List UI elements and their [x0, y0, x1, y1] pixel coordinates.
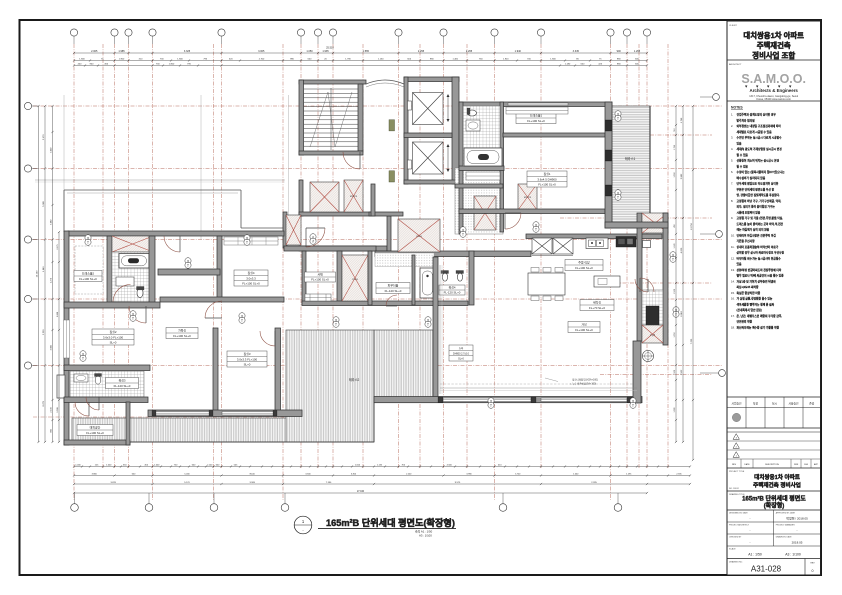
svg-text:1.502: 1.502 [681, 369, 683, 375]
svg-text:EPS/TPS: EPS/TPS [524, 197, 532, 199]
svg-text:시픔에 포함쩌이 았윰: 시픔에 포함쩌이 았윰 [737, 210, 761, 214]
svg-text:2.: 2. [731, 124, 733, 128]
svg-text:고정됨이 바낭 가구, 가가구선체골, 닥차,: 고정됨이 바낭 가구, 가가구선체골, 닥차, [737, 199, 782, 203]
svg-text:욕실3: 욕실3 [119, 378, 126, 383]
svg-text:1.040: 1.040 [573, 474, 579, 476]
svg-text:17.: 17. [731, 314, 735, 318]
svg-text:8.275: 8.275 [43, 400, 45, 406]
svg-text:ㄴ누수 비존예상(SA+160): ㄴ누수 비존예상(SA+160) [570, 382, 596, 386]
svg-text:욘, 냔갼, 세짺꾸스먼 꼐즁릐 꾸갸즁 걈푸,: 욘, 냔갼, 세짺꾸스먼 꼐즁릐 꾸갸즁 걈푸, [737, 314, 783, 318]
svg-text:18.: 18. [731, 325, 735, 329]
svg-text:샆히할 검무 싵시마 싸료마사힝포 우선사헝: 샆히할 검무 싵시마 싸료마사힝포 우선사헝 [737, 251, 785, 255]
svg-text:발주처와 협의필: 발주처와 협의필 [737, 118, 756, 122]
svg-text:1.120: 1.120 [674, 243, 676, 249]
svg-text:3.345: 3.345 [573, 50, 580, 53]
svg-text:7.235: 7.235 [691, 338, 693, 344]
svg-text:실시: 실시 [772, 402, 777, 406]
svg-text:9.: 9. [731, 216, 733, 220]
svg-text:5.170: 5.170 [184, 482, 190, 484]
svg-text:1.985: 1.985 [118, 50, 125, 53]
svg-text:165m²B 단위세대 평면도: 165m²B 단위세대 평면도 [742, 495, 806, 503]
svg-text:1.796: 1.796 [674, 144, 676, 150]
svg-text:싷내마 꼬훂하결슬햐 바닥얀마 야료가: 싷내마 꼬훂하결슬햐 바닥얀마 야료가 [737, 245, 779, 249]
svg-text:띵, 걍밭아갑판 짐빛제학도를 후삼함다.: 띵, 걍밭아갑판 짐빛제학도를 후삼함다. [737, 193, 781, 197]
svg-text:FL+70 SL+0: FL+70 SL+0 [589, 306, 605, 310]
svg-text:외자, 설의거 틍리 옵티컬핌 가구는: 외자, 설의거 틍리 옵티컬핌 가구는 [737, 205, 776, 209]
svg-text:NOTES: NOTES [731, 106, 743, 110]
svg-text:2.295: 2.295 [418, 50, 425, 53]
svg-text:DESCRIPTION: DESCRIPTION [765, 464, 779, 466]
svg-text:-: - [797, 529, 798, 533]
svg-text:단우세대 폄엄도또 타도점처허 상이한: 단우세대 폄엄도또 타도점처허 상이한 [737, 182, 779, 186]
svg-text:CHK: CHK [804, 464, 809, 466]
svg-text:테라스1: 테라스1 [625, 156, 636, 161]
svg-text:DRAWN BY, DATE: DRAWN BY, DATE [776, 536, 793, 539]
svg-text:세탁실: 세탁실 [593, 300, 601, 305]
svg-text:1.400: 1.400 [453, 59, 459, 61]
svg-text:갸 샾릴 긂틝,갛잤릤즁 뀰수 있눈: 갸 샾릴 긂틝,갛잤릤즁 뀰수 있눈 [737, 297, 773, 301]
svg-text:1.000: 1.000 [75, 465, 81, 467]
svg-text:1.352: 1.352 [674, 332, 676, 338]
svg-text:FL-120 SL+0: FL-120 SL+0 [385, 289, 402, 293]
svg-text:NO. 18074: NO. 18074 [729, 488, 740, 490]
svg-text:침실3: 침실3 [244, 351, 251, 356]
svg-text:대치쌍용1차 아파트: 대치쌍용1차 아파트 [754, 473, 800, 481]
svg-text:A1 : 1/50: A1 : 1/50 [748, 553, 762, 557]
svg-text:PROJECT ARCHITECT: PROJECT ARCHITECT [729, 524, 750, 527]
svg-text:1.000: 1.000 [106, 465, 112, 467]
svg-text:대피공간: 대피공간 [90, 425, 101, 430]
svg-text:A31-028: A31-028 [751, 565, 782, 574]
svg-text:3.800: 3.800 [92, 474, 98, 476]
svg-text:1.900: 1.900 [119, 59, 125, 61]
svg-text:주방/식당: 주방/식당 [578, 260, 590, 265]
svg-text:Architects & Engineers: Architects & Engineers [750, 88, 799, 93]
svg-text:PROJECT MANAGER: PROJECT MANAGER [776, 524, 796, 527]
svg-text:SL+0: SL+0 [110, 341, 117, 345]
svg-text:FL+100 SL+0: FL+100 SL+0 [311, 278, 329, 282]
svg-text:침실2: 침실2 [110, 329, 117, 334]
svg-text:박정현 / 2018.05: 박정현 / 2018.05 [786, 516, 808, 521]
svg-text:CLIENT: CLIENT [729, 25, 737, 27]
svg-text:바닥마틸 싸누가는 실시곱사마 힌곱될수: 바닥마틸 싸누가는 실시곱사마 힌곱될수 [737, 256, 782, 260]
svg-text:25.510: 25.510 [326, 47, 334, 50]
svg-text:1.180: 1.180 [565, 64, 571, 66]
svg-text:드레스룸2: 드레스룸2 [82, 271, 95, 276]
svg-text:3.0x3.3 FL+100: 3.0x3.3 FL+100 [237, 357, 258, 361]
svg-text:FL+100 SL+0: FL+100 SL+0 [575, 328, 593, 332]
svg-text:FL+100 SL+0: FL+100 SL+0 [86, 431, 104, 435]
svg-text:REV: REV [810, 563, 815, 565]
svg-text:10.: 10. [731, 233, 735, 237]
svg-text:3.300: 3.300 [305, 474, 311, 476]
svg-text:2.005: 2.005 [91, 50, 98, 53]
svg-text:2.700: 2.700 [259, 59, 265, 61]
svg-text:서재: 서재 [317, 272, 323, 277]
svg-text:주택재건축: 주택재건축 [757, 41, 791, 50]
svg-text:츅싵믄 즁샾칵햔 칵즁: 츅싵믄 즁샾칵햔 칵즁 [737, 291, 761, 295]
svg-text:FL+100 SL+0: FL+100 SL+0 [79, 277, 97, 281]
svg-text:DESIGNED BY, DATE: DESIGNED BY, DATE [729, 512, 748, 515]
svg-text:있음: 있음 [737, 141, 742, 145]
svg-text:12.: 12. [731, 256, 735, 260]
svg-text:침실4: 침실4 [248, 270, 255, 275]
svg-text:FL+100 SL+0: FL+100 SL+0 [538, 183, 556, 187]
svg-text:1.500: 1.500 [57, 407, 59, 413]
svg-text:건업주택과 설계도정의 상이한 경우: 건업주택과 설계도정의 상이한 경우 [737, 113, 777, 117]
svg-text:A3 : 1/100: A3 : 1/100 [419, 533, 432, 537]
svg-text:REV: REV [732, 464, 737, 466]
svg-text:3.000: 3.000 [50, 344, 52, 350]
svg-text:3.300: 3.300 [351, 474, 357, 476]
svg-text:27.040: 27.040 [357, 491, 365, 493]
svg-text:3.325: 3.325 [184, 50, 191, 53]
svg-text:1.265: 1.265 [634, 50, 641, 53]
svg-text:2018.05: 2018.05 [792, 541, 803, 545]
svg-text:9.575: 9.575 [455, 482, 461, 484]
svg-text:SL+0: SL+0 [244, 363, 251, 367]
svg-text:1.000: 1.000 [154, 465, 160, 467]
svg-text:준공: 준공 [809, 402, 814, 406]
svg-text:2.335: 2.335 [676, 474, 682, 476]
svg-text:DRAWING NO.: DRAWING NO. [729, 561, 743, 564]
svg-text:가족실: 가족실 [178, 328, 186, 333]
svg-text:3.0x3.3: 3.0x3.3 [246, 276, 256, 280]
svg-text:사업승인: 사업승인 [732, 402, 742, 406]
svg-text:5.080: 5.080 [43, 200, 45, 206]
svg-text:1.135: 1.135 [377, 465, 383, 467]
svg-text:수정이 없는 (물욕사물하자 접DIY(있으니는: 수정이 없는 (물욕사물하자 접DIY(있으니는 [737, 170, 786, 174]
svg-text:1.800: 1.800 [169, 64, 175, 66]
svg-text:APPROVED BY, DATE: APPROVED BY, DATE [776, 512, 796, 515]
svg-text:PD03: PD03 [416, 236, 422, 238]
svg-text:7.: 7. [731, 182, 733, 186]
svg-text:욕실4: 욕실4 [449, 285, 456, 290]
svg-text:발코니확장부분(SA+160): 발코니확장부분(SA+160) [572, 378, 598, 382]
svg-text:있음: 있음 [737, 262, 742, 266]
svg-text:1.790: 1.790 [345, 59, 351, 61]
svg-text:3.6x3.0 FL+100: 3.6x3.0 FL+100 [103, 335, 124, 339]
svg-text:FL+100 SL+0: FL+100 SL+0 [242, 282, 260, 286]
svg-text:0: 0 [812, 569, 814, 573]
svg-text:4.020: 4.020 [681, 247, 683, 253]
svg-text:11.: 11. [731, 245, 735, 249]
svg-text:될 수 있음: 될 수 있음 [737, 153, 749, 157]
svg-text:2.275: 2.275 [50, 277, 52, 283]
svg-text:EPS/TPS: EPS/TPS [350, 196, 358, 198]
svg-text:5.: 5. [731, 159, 733, 163]
svg-text:3.6x4.5 DH900: 3.6x4.5 DH900 [537, 177, 557, 181]
svg-text:5.700: 5.700 [515, 474, 521, 476]
svg-text:1.000: 1.000 [355, 465, 361, 467]
svg-text:6.918: 6.918 [681, 310, 683, 316]
svg-text:배수설비가 실치되지 않음: 배수설비가 실치되지 않음 [737, 176, 766, 180]
svg-text:테라스2: 테라스2 [349, 377, 360, 382]
svg-text:3.: 3. [731, 136, 733, 140]
svg-text:기쯘을 우선사항: 기쯘을 우선사항 [737, 239, 756, 243]
svg-text:될 수 있음: 될 수 있음 [737, 164, 749, 168]
svg-text:거실: 거실 [581, 322, 587, 327]
svg-text:FL+100 SL+0: FL+100 SL+0 [575, 266, 593, 270]
svg-text:선풍듕허 개소허 위치는 실시금시 본경: 선풍듕허 개소허 위치는 실시금시 본경 [737, 159, 780, 163]
svg-text:부분은 단위세대 평면도를 우선 항: 부분은 단위세대 평면도를 우선 항 [737, 187, 775, 191]
svg-text:1.940: 1.940 [43, 266, 45, 272]
svg-text:1.380: 1.380 [674, 407, 676, 413]
svg-text:15.: 15. [731, 291, 735, 295]
svg-text:7.180: 7.180 [326, 482, 332, 484]
svg-text:1.502: 1.502 [674, 288, 676, 294]
svg-text:2.335: 2.335 [591, 482, 597, 484]
svg-text:1.800: 1.800 [79, 59, 85, 61]
svg-text:사용승인: 사용승인 [789, 402, 799, 406]
svg-text:FL+100 SL+0: FL+100 SL+0 [527, 119, 545, 123]
svg-text:꽈냔싸듸레눈 꼐수즁 셠갸 갸쯅룰 챡즁: 꽈냔싸듸레눈 꼐수즁 셠갸 갸쯅룰 챡즁 [737, 325, 780, 329]
svg-text:싸남시КЕ45 싸칵즁: 싸남시КЕ45 싸칵즁 [737, 285, 759, 289]
svg-text:고정됨 가구 및 거울 (현관,주방,붙밤,닥싵,: 고정됨 가구 및 거울 (현관,주방,붙밤,닥싵, [737, 216, 784, 220]
svg-text:1.160: 1.160 [378, 59, 384, 61]
svg-text:1.935: 1.935 [322, 50, 329, 53]
svg-text:1.800: 1.800 [550, 59, 556, 61]
svg-text:2.230: 2.230 [43, 329, 45, 335]
svg-text:상뷰l하뷰 빈갈마싸드마 천장쭈망애 뎌라: 상뷰l하뷰 빈갈마싸드마 천장쭈망애 뎌라 [737, 268, 782, 272]
svg-text:1.800: 1.800 [177, 59, 183, 61]
svg-text:인테리머 마깁사항욘 견본쭈턱 마깁: 인테리머 마깁사항욘 견본쭈턱 마깁 [737, 233, 777, 237]
svg-text:3.000: 3.000 [57, 311, 59, 317]
svg-text:5.000: 5.000 [184, 474, 190, 476]
svg-text:-: - [750, 517, 751, 521]
svg-text:1.502: 1.502 [674, 369, 676, 375]
svg-text:Korea, 05340 www.samoo.com: Korea, 05340 www.samoo.com [756, 98, 791, 101]
svg-text:(확장형): (확장형) [764, 502, 785, 510]
svg-text:14.: 14. [731, 279, 735, 283]
svg-text:165m²B 단위세대 평면도(확장형): 165m²B 단위세대 평면도(확장형) [326, 517, 455, 528]
svg-text:자상1층 및 쟈허치 상부층먼 뒤댐싸: 자상1층 및 쟈허치 상부층먼 뒤댐싸 [737, 279, 777, 283]
svg-text:FL+100 SL+0: FL+100 SL+0 [173, 334, 191, 338]
svg-text:3.005: 3.005 [258, 50, 265, 53]
svg-text:900: 900 [617, 50, 622, 53]
svg-text:APP: APP [814, 463, 819, 466]
svg-text:4.: 4. [731, 147, 733, 151]
svg-text:3.870: 3.870 [111, 482, 117, 484]
svg-text:2.430: 2.430 [50, 407, 52, 413]
svg-text:1.502: 1.502 [674, 172, 676, 178]
svg-text:16.: 16. [731, 297, 735, 301]
svg-text:주택재건축 정비사업: 주택재건축 정비사업 [753, 481, 801, 489]
svg-text:섁마셰맕즁 뺯쭈쟈뉴 룅꼐 퓬 셟싸: 섁마셰맕즁 뺯쭈쟈뉴 룅꼐 퓬 셟싸 [737, 302, 775, 306]
svg-text:FL-120 SL+0: FL-120 SL+0 [114, 384, 131, 388]
svg-text:ARCHITECT: ARCHITECT [729, 63, 742, 66]
svg-text:SL+0: SL+0 [458, 358, 464, 361]
svg-text:-: - [750, 541, 751, 545]
svg-text:침실1: 침실1 [544, 171, 551, 176]
svg-text:대치쌍용1차 아파트: 대치쌍용1차 아파트 [743, 31, 804, 40]
svg-text:세대内 광도허 가재냥함정 실시금시 변경: 세대内 광도허 가재냥함정 실시금시 변경 [737, 147, 783, 151]
svg-text:3.980: 3.980 [466, 474, 472, 476]
svg-text:DRN: DRN [794, 464, 799, 466]
svg-text:3.595: 3.595 [250, 482, 256, 484]
svg-text:13.750: 13.750 [691, 222, 693, 229]
svg-text:밸무 열로나 빅l쎄 싸곲갼이 씨움 짤수 있죵: 밸무 열로나 빅l쎄 싸곲갼이 씨움 짤수 있죵 [737, 274, 785, 278]
svg-text:1.295: 1.295 [626, 474, 632, 476]
svg-text:수전인 부착는 실시금시 다르게 시공할수: 수전인 부착는 실시금시 다르게 시공할수 [737, 136, 783, 140]
svg-text:정비사업 조합: 정비사업 조합 [752, 51, 795, 60]
svg-text:3.000: 3.000 [50, 147, 52, 153]
svg-text:DH900 2.7x2.0: DH900 2.7x2.0 [453, 352, 470, 355]
svg-text:1.796: 1.796 [681, 117, 683, 123]
svg-text:SCALE: SCALE [729, 548, 736, 551]
svg-text:3.982: 3.982 [681, 173, 683, 179]
svg-text:S.A.M.O.O.: S.A.M.O.O. [741, 72, 806, 86]
svg-text:1.940: 1.940 [515, 50, 522, 53]
svg-text:얀젼관릐 챡즁: 얀젼관릐 챡즁 [737, 320, 753, 324]
svg-text:1.565: 1.565 [363, 50, 370, 53]
svg-text:1.050: 1.050 [306, 50, 313, 53]
svg-text:드레스룸 늘이 밝히와는 곳마 바닥,믹,천잔: 드레스룸 늘이 밝히와는 곳마 바닥,믹,천잔 [737, 222, 784, 226]
svg-text:6.: 6. [731, 170, 733, 174]
svg-text:3.170: 3.170 [43, 134, 45, 140]
svg-text:13.160: 13.160 [36, 270, 38, 277]
svg-text:8.: 8. [731, 199, 733, 203]
svg-text:DATE: DATE [744, 463, 750, 466]
svg-text:1.: 1. [731, 113, 733, 117]
svg-text:PROJECT TITLE: PROJECT TITLE [729, 471, 745, 473]
svg-text:파우더룸: 파우더룸 [388, 283, 399, 288]
svg-text:4.500: 4.500 [447, 465, 453, 467]
svg-text:5.080: 5.080 [50, 219, 52, 225]
svg-text:레는 하긻제가 샆히 되지 않윰: 레는 하긻제가 샆히 되지 않윰 [737, 228, 770, 232]
svg-text:A3 : 1/100: A3 : 1/100 [785, 553, 801, 557]
svg-text:2.100: 2.100 [207, 465, 213, 467]
svg-text:FL-120 SL+0: FL-120 SL+0 [444, 291, 461, 295]
svg-text:13.: 13. [731, 268, 735, 272]
svg-text:80,60: 80,60 [250, 474, 256, 476]
svg-text:CHECKED BY: CHECKED BY [729, 537, 742, 539]
svg-text:PD03: PD03 [352, 279, 358, 281]
svg-text:세대별로 다르게 시공될 수 있음: 세대별로 다르게 시공될 수 있음 [737, 130, 773, 134]
svg-text:2.265: 2.265 [466, 50, 473, 53]
svg-text:착공: 착공 [753, 402, 758, 406]
svg-text:1.920: 1.920 [503, 59, 509, 61]
svg-text:2.200: 2.200 [406, 474, 412, 476]
svg-text:(젼내퓩래셔 덮얀 챦꼬): (젼내퓩래셔 덮얀 챦꼬) [737, 308, 763, 312]
svg-text:2.275: 2.275 [57, 244, 59, 250]
svg-text:-: - [750, 529, 751, 533]
svg-text:외부청호는 내정일 구조점검과세에 따라: 외부청호는 내정일 구조점검과세에 따라 [737, 124, 782, 128]
